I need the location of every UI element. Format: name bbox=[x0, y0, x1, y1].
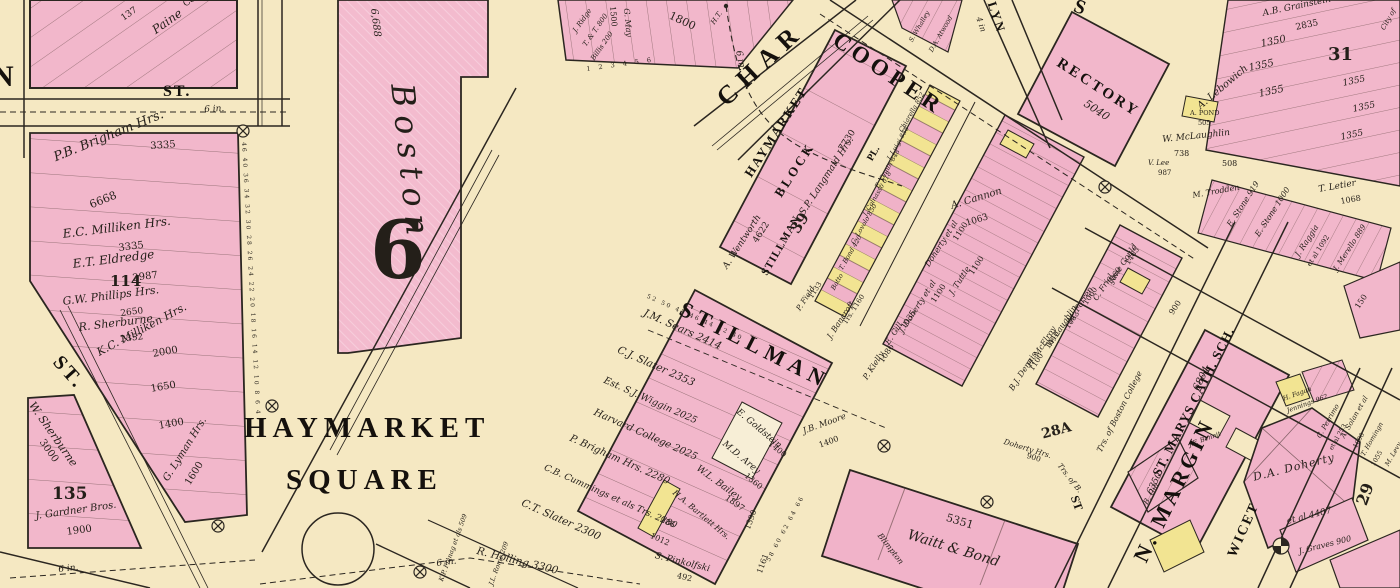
parcel-owner: A. POND bbox=[1190, 110, 1219, 117]
manhole-symbol bbox=[1273, 538, 1289, 554]
pipe-label-1: 6 in. bbox=[204, 105, 225, 115]
square-title-line2: SQUARE bbox=[286, 466, 443, 495]
square-circle bbox=[302, 513, 374, 585]
parcel-owner: G. May bbox=[622, 8, 632, 37]
parcel-area: 505 bbox=[1198, 120, 1210, 127]
parcel-area: 987 bbox=[1158, 170, 1171, 177]
block-waitt bbox=[822, 470, 1078, 588]
map-linework bbox=[0, 0, 1400, 588]
street-label-n-edge: N bbox=[0, 62, 14, 92]
parcel-area: 508 bbox=[1222, 160, 1237, 168]
block-number-31: 31 bbox=[1328, 46, 1353, 64]
parcel-area: 3335 bbox=[150, 140, 176, 152]
parcel-area: 1500 bbox=[608, 6, 618, 27]
se-pink-cell bbox=[1302, 360, 1354, 402]
atlas-map: HAYMARKET SQUARE ST. ST. CHAR COOPER LYN… bbox=[0, 0, 1400, 588]
block-cooper-north bbox=[892, 0, 962, 52]
square-title-line1: HAYMARKET bbox=[244, 414, 490, 443]
street-label-st-top: ST. bbox=[163, 84, 191, 100]
block-number-135: 135 bbox=[52, 486, 88, 503]
parcel-owner: V. Lee bbox=[1148, 160, 1169, 167]
parcel-area: 738 bbox=[1174, 150, 1189, 158]
parcel-area: 6,688 bbox=[368, 8, 381, 38]
block-gould bbox=[1036, 225, 1182, 417]
